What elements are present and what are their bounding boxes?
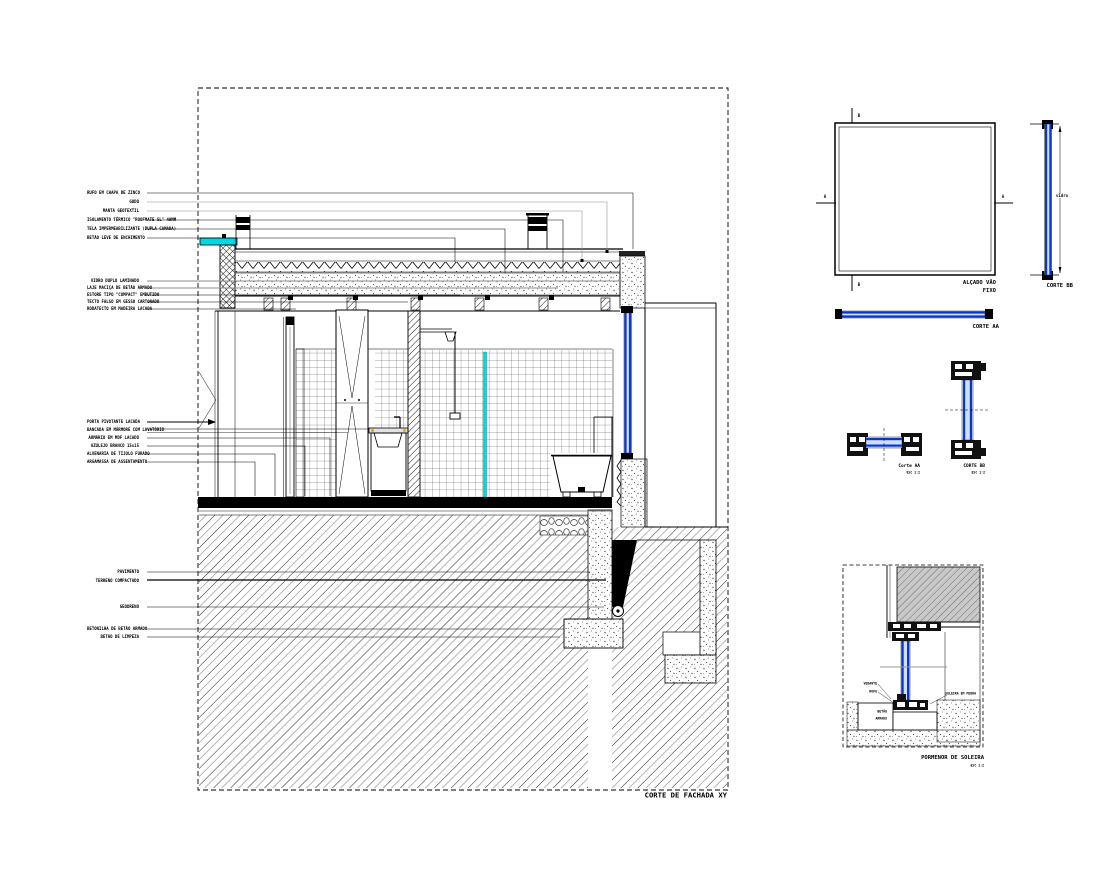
label-interior-3: AZULEJO BRANCO 15x15 bbox=[87, 444, 139, 448]
wall-mass bbox=[897, 567, 980, 622]
frame-detail-aa bbox=[847, 428, 922, 461]
label-interior-4: ALVENARIA DE TIJOLO FURADO bbox=[87, 452, 139, 456]
shower-head bbox=[445, 332, 456, 341]
marker-a-left: A bbox=[822, 195, 828, 199]
detail-aa-scale: ESC 1:2 bbox=[878, 471, 920, 474]
interior-left-wall bbox=[215, 311, 235, 497]
detail-bb-title: CORTE BB bbox=[927, 464, 986, 469]
sill-note-2: SOLEIRA EM PEDRA bbox=[934, 692, 976, 695]
marker-b-bottom: B bbox=[856, 283, 862, 287]
label-roof-1: GODO bbox=[87, 200, 139, 204]
elevation-title: ALÇADO VÃO bbox=[925, 280, 997, 286]
detail-bb-scale: ESC 1:2 bbox=[943, 471, 985, 474]
sill-note-1: RUFO bbox=[835, 690, 877, 693]
vent-stack-left bbox=[236, 215, 250, 249]
label-roof-3: ISOLAMENTO TÉRMICO "ROOFMATE SL" 40MM bbox=[87, 218, 139, 222]
tub-foot-right bbox=[594, 492, 601, 497]
label-interior-1: BANCADA EM MÁRMORE COM LAVATÓRIO bbox=[87, 428, 139, 432]
sill-note-0: VEDANTE bbox=[835, 682, 877, 685]
label-ground-2: GEODRENO bbox=[87, 605, 139, 609]
counter-fixing-left bbox=[371, 429, 374, 432]
chimney bbox=[526, 213, 549, 249]
label-ground-3: BETONILHA DE BETÃO ARMADO bbox=[87, 627, 139, 631]
window-section bbox=[617, 306, 647, 527]
sill-note-3: BETÃO bbox=[845, 710, 887, 713]
label-ground-4: BETÃO DE LIMPEZA bbox=[87, 635, 139, 639]
label-ceiling-2: ESTORE TIPO "COMPACT" EMBUTIDO bbox=[87, 293, 139, 297]
frame-detail-bb bbox=[945, 361, 990, 459]
ground-hatch bbox=[199, 515, 727, 788]
floor-slab bbox=[198, 497, 612, 511]
label-roof-0: RUFO EM CHAPA DE ZINCO bbox=[87, 191, 139, 195]
basin bbox=[374, 433, 402, 447]
glass-dimension-label: vidro bbox=[1054, 194, 1070, 198]
label-interior-5: ARGAMASSA DE ASSENTAMENTO bbox=[87, 460, 139, 464]
label-roof-5: BETÃO LEVE DE ENCHIMENTO bbox=[87, 236, 139, 240]
label-ceiling-1: LAJE MACIÇA DE BETÃO ARMADO bbox=[87, 286, 139, 290]
shower-valve bbox=[450, 413, 460, 419]
label-ceiling-3: TECTO FALSO EM GESSO CARTONADO bbox=[87, 300, 139, 304]
shower-screen bbox=[484, 352, 487, 497]
sill-detail-scale: ESC 1:2 bbox=[942, 764, 984, 767]
label-roof-2: MANTA GEOTEXTIL bbox=[87, 209, 139, 213]
cad-linework bbox=[0, 0, 1105, 873]
wall-below-window bbox=[621, 459, 647, 527]
marker-a-right: A bbox=[1000, 195, 1006, 199]
label-interior-2: ARMÁRIO EM MDF LACADO bbox=[87, 436, 139, 440]
window-sill-frame bbox=[621, 453, 633, 459]
main-title: CORTE DE FACHADA XY bbox=[612, 792, 727, 799]
tub-body bbox=[553, 456, 611, 492]
parapet-right-cap bbox=[619, 251, 645, 256]
label-ceiling-0: VIDRO DUPLO LAMINADO bbox=[87, 279, 139, 283]
label-ceiling-4: RODATECTO EM MADEIRA LACADA bbox=[87, 307, 139, 311]
sill-note-4: ARMADO bbox=[845, 717, 887, 720]
label-roof-4: TELA IMPERMEABILIZANTE (DUPLA CAMADA) bbox=[87, 227, 139, 231]
sill-waterstop bbox=[617, 460, 621, 506]
partition-wall bbox=[408, 311, 420, 497]
sill-detail-title: PORMENOR DE SOLEIRA bbox=[913, 755, 985, 761]
parapet-right bbox=[620, 256, 645, 308]
label-ground-0: PAVIMENTO bbox=[87, 570, 139, 574]
detail-aa-title: Corte AA bbox=[862, 464, 921, 469]
roof-capping-cyan bbox=[200, 238, 237, 245]
washbasin bbox=[369, 417, 408, 496]
tub-drain bbox=[578, 487, 585, 492]
corte-bb-title: CORTE BB bbox=[1002, 283, 1074, 289]
corte-bb-strip bbox=[1030, 120, 1061, 280]
corte-aa-title: CORTE AA bbox=[928, 324, 1000, 330]
counter-fixing-right bbox=[403, 429, 406, 432]
window-head-frame bbox=[621, 306, 633, 313]
window-elevation bbox=[816, 108, 1013, 291]
marker-b-top: B bbox=[856, 114, 862, 118]
tub-foot-left bbox=[563, 492, 570, 497]
corte-aa-strip bbox=[835, 309, 993, 319]
tall-cabinet bbox=[336, 310, 368, 497]
counter bbox=[369, 428, 408, 433]
roof-insulation bbox=[235, 262, 620, 272]
drawing-sheet: RUFO EM CHAPA DE ZINCO GODO MANTA GEOTEX… bbox=[0, 0, 1105, 873]
label-interior-0: PORTA PIVOTANTE LACADA bbox=[87, 420, 139, 424]
elevation-title-2: FIXO bbox=[925, 288, 997, 294]
label-ground-1: TERRENO COMPACTADO bbox=[87, 579, 139, 583]
roof-screed bbox=[235, 273, 620, 295]
